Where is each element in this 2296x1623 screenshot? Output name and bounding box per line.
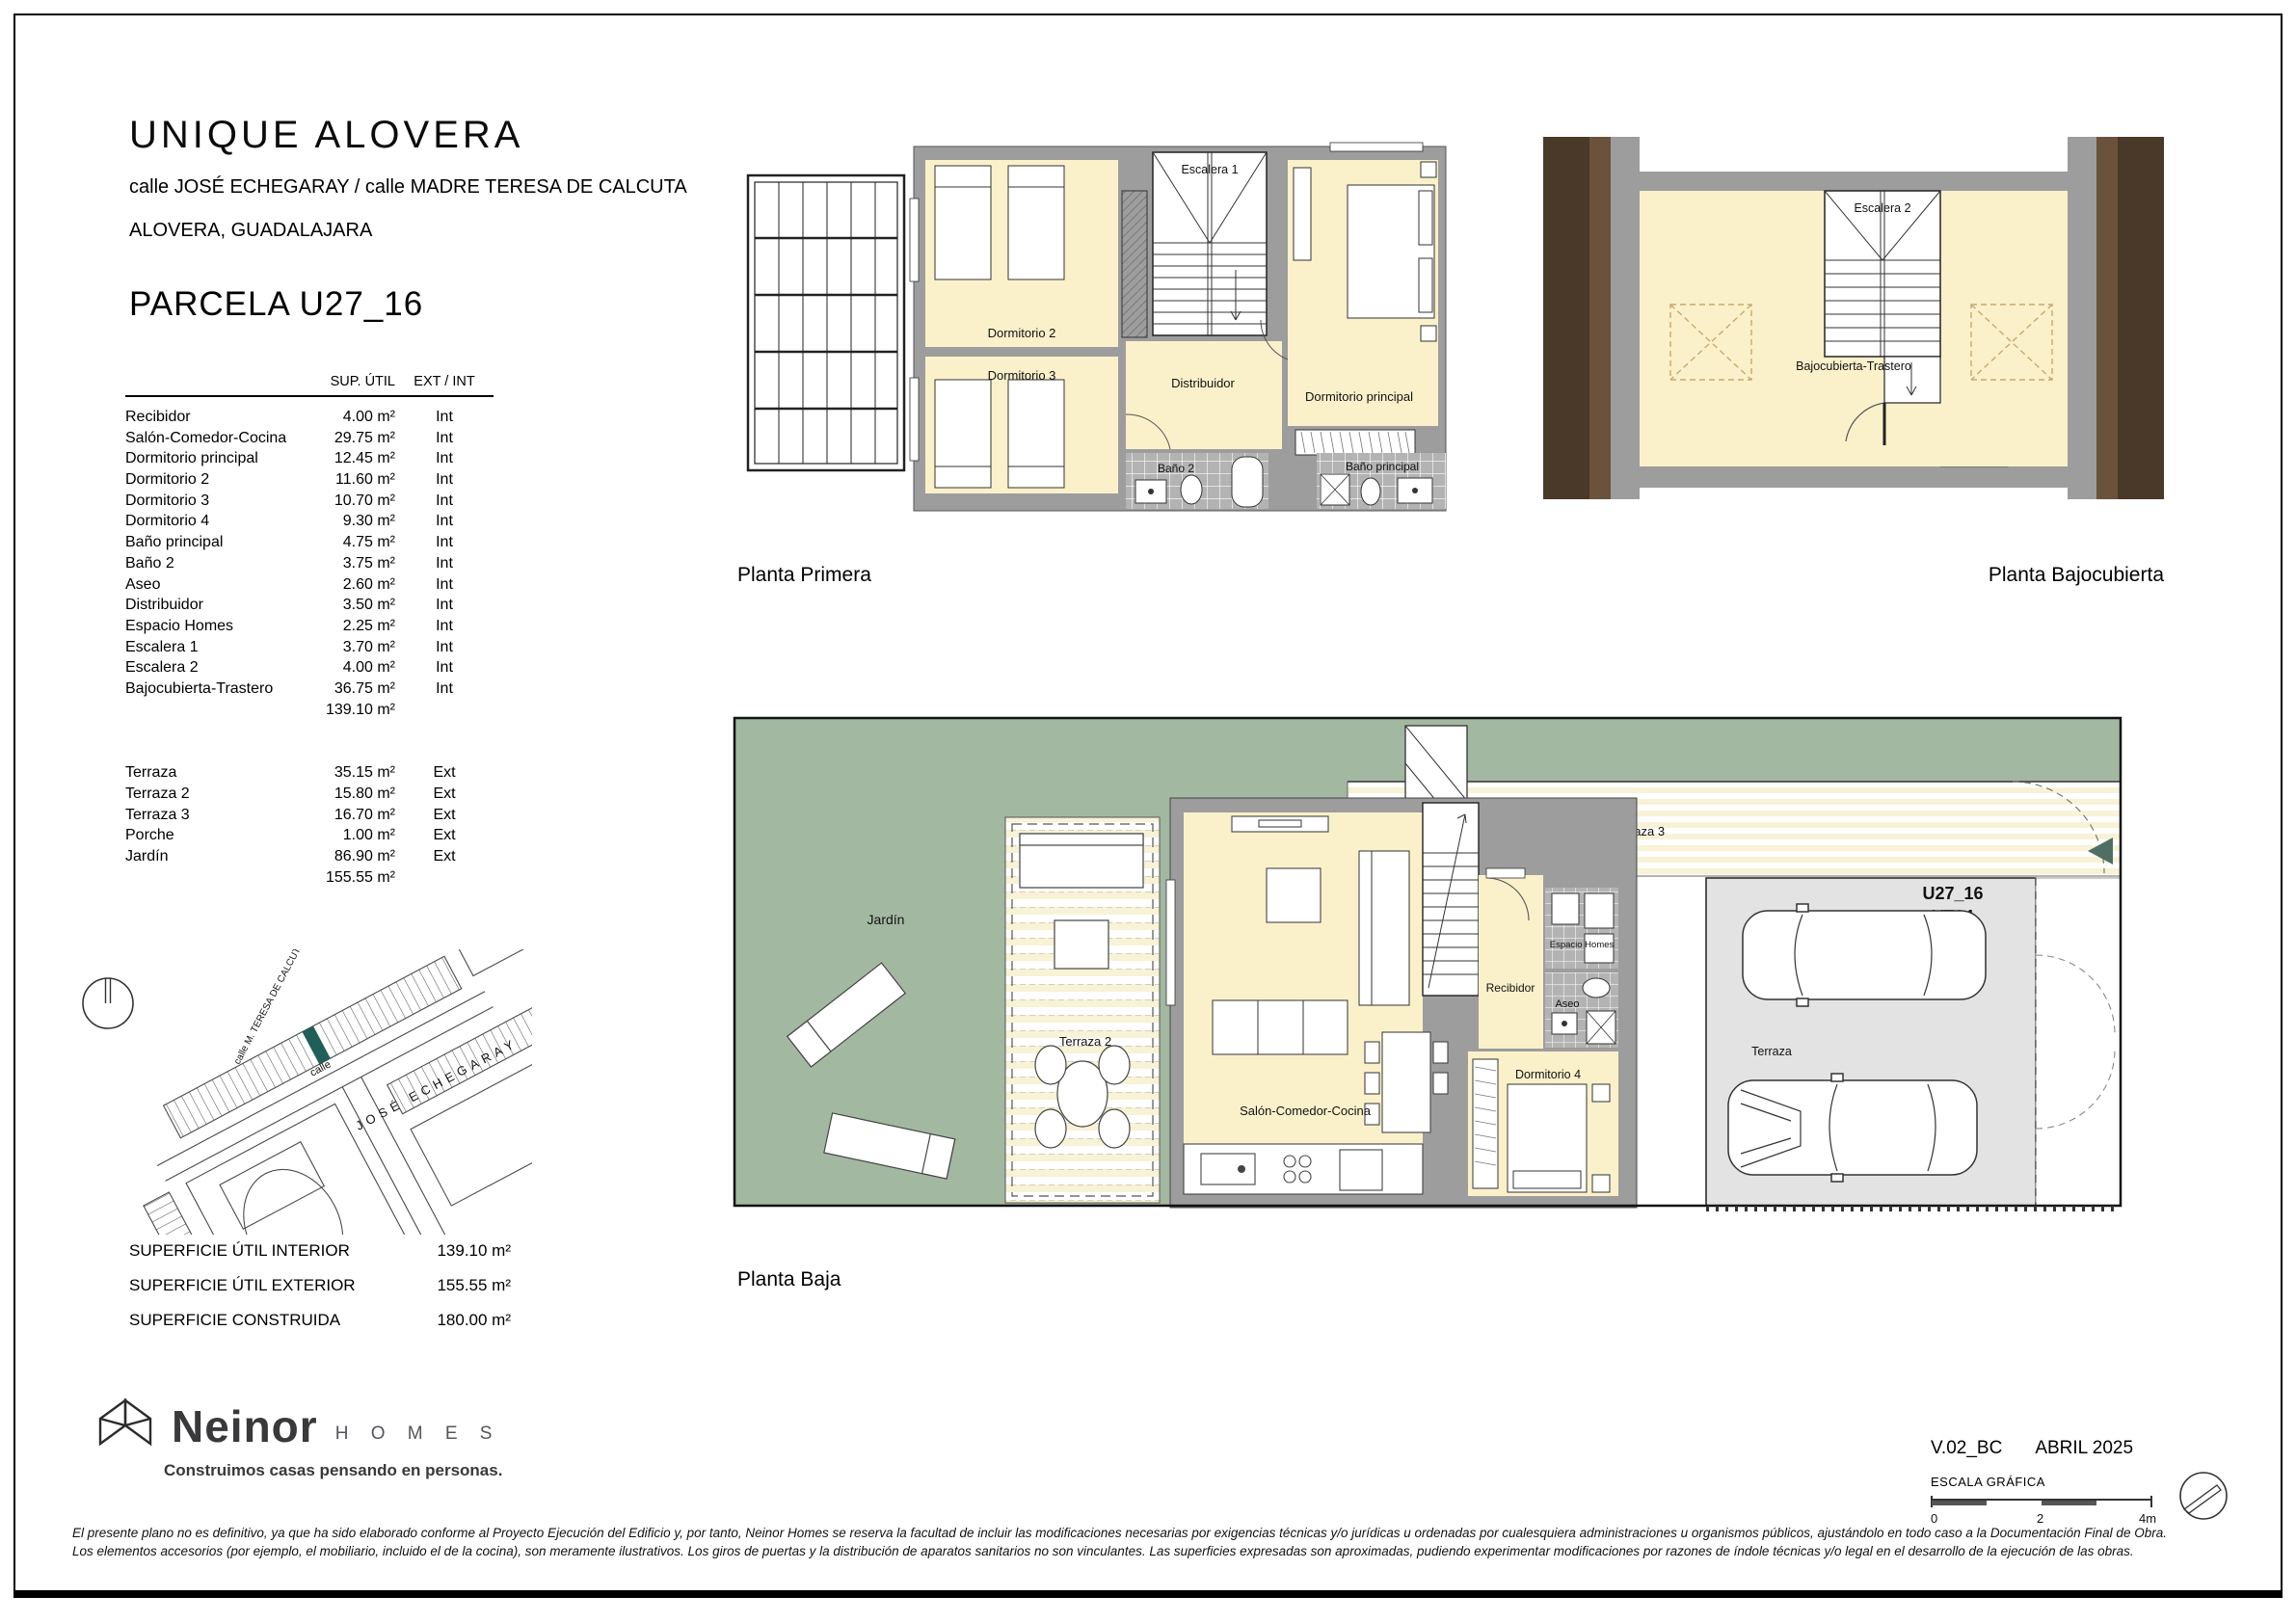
parcel-title: PARCELA U27_16 — [129, 285, 423, 324]
table-row: Escalera 13.70 m²Int — [125, 637, 494, 658]
svg-text:Recibidor: Recibidor — [1486, 981, 1535, 995]
svg-text:Dormitorio principal: Dormitorio principal — [1305, 389, 1413, 404]
table-row: Baño 23.75 m²Int — [125, 553, 494, 574]
room-espacio-homes: Espacio Homes — [1545, 888, 1618, 969]
svg-text:Aseo: Aseo — [1555, 998, 1579, 1010]
room-dormitorio-3: Dormitorio 3 — [925, 357, 1118, 493]
svg-text:0: 0 — [1931, 1511, 1937, 1526]
svg-text:Escalera 2: Escalera 2 — [1854, 201, 1910, 215]
brand-tagline: Construimos casas pensando en personas. — [164, 1461, 502, 1480]
table-row: Salón-Comedor-Cocina29.75 m²Int — [125, 428, 494, 449]
brand-sub: H O M E S — [335, 1423, 501, 1445]
disclaimer-paragraph-2: Los elementos accesorios (por ejemplo, e… — [72, 1543, 2239, 1561]
planta-baja-plan: Jardín Terraza 2 Terraza 3 — [731, 706, 2135, 1216]
table-row: Recibidor4.00 m²Int — [125, 407, 494, 428]
surface-total-row: SUPERFICIE CONSTRUIDA180.00 m² — [129, 1311, 511, 1345]
table-row: Dormitorio 310.70 m²Int — [125, 491, 494, 512]
wardrobe — [1122, 191, 1147, 337]
area-table: SUP. ÚTIL EXT / INT Recibidor4.00 m²IntS… — [125, 374, 494, 888]
planta-bajocubierta-plan: Escalera 2 Bajocubierta-Trastero — [1535, 123, 2172, 513]
room-aseo: Aseo — [1545, 972, 1618, 1048]
version-code: V.02_BC — [1931, 1438, 2002, 1458]
column-sup-util: SUP. ÚTIL — [289, 374, 395, 393]
neinor-logo-icon — [96, 1396, 156, 1448]
table-row: Dormitorio 211.60 m²Int — [125, 469, 494, 491]
disclaimer-paragraph-1: El presente plano no es definitivo, ya q… — [72, 1525, 2239, 1543]
room-salon-comedor-cocina: Salón-Comedor-Cocina — [1166, 812, 1448, 1194]
terraza-2: Terraza 2 — [1005, 817, 1160, 1203]
exterior-total-row: 155.55 m² — [125, 867, 494, 889]
svg-text:Espacio Homes: Espacio Homes — [1550, 940, 1615, 950]
exterior-total: 155.55 m² — [289, 867, 395, 889]
garage-terrace: Terraza U27_16 VT04 — [1706, 878, 2036, 1206]
table-row: Aseo2.60 m²Int — [125, 574, 494, 596]
svg-text:4m: 4m — [2139, 1511, 2156, 1526]
address-line-1: calle JOSÉ ECHEGARAY / calle MADRE TERES… — [129, 176, 687, 199]
svg-text:Distribuidor: Distribuidor — [1171, 376, 1235, 390]
exterior-rows: Terraza35.15 m²ExtTerraza 215.80 m²ExtTe… — [125, 762, 494, 866]
pergola-grid — [748, 175, 904, 470]
svg-text:Dormitorio 2: Dormitorio 2 — [988, 326, 1056, 340]
room-label-jardin: Jardín — [868, 912, 905, 927]
page-title: UNIQUE ALOVERA — [129, 114, 523, 157]
table-row: Bajocubierta-Trastero36.75 m²Int — [125, 678, 494, 700]
interior-stair — [1423, 803, 1479, 996]
north-arrow-icon — [2176, 1469, 2230, 1523]
area-table-header: SUP. ÚTIL EXT / INT — [125, 374, 494, 393]
caption-planta-primera: Planta Primera — [737, 564, 871, 587]
svg-text:Terraza: Terraza — [1751, 1045, 1792, 1058]
sheet-bottom-rule — [13, 1590, 2283, 1597]
surface-total-row: SUPERFICIE ÚTIL EXTERIOR155.55 m² — [129, 1276, 511, 1311]
room-dormitorio-2: Dormitorio 2 — [925, 160, 1118, 347]
svg-text:Dormitorio 4: Dormitorio 4 — [1515, 1068, 1581, 1081]
surface-totals: SUPERFICIE ÚTIL INTERIOR139.10 m²SUPERFI… — [129, 1241, 511, 1345]
svg-text:Baño principal: Baño principal — [1346, 460, 1419, 473]
room-label: Bajocubierta-Trastero — [1796, 359, 1911, 373]
room-recibidor: Recibidor — [1479, 868, 1543, 1049]
caption-planta-bajocubierta: Planta Bajocubierta — [1831, 564, 2164, 587]
svg-text:Baño 2: Baño 2 — [1158, 462, 1194, 475]
legal-disclaimer: El presente plano no es definitivo, ya q… — [72, 1525, 2239, 1560]
table-row: Dormitorio 49.30 m²Int — [125, 511, 494, 532]
interior-rows: Recibidor4.00 m²IntSalón-Comedor-Cocina2… — [125, 407, 494, 700]
version-block: V.02_BCABRIL 2025 — [1931, 1438, 2133, 1459]
room-dormitorio-4: Dormitorio 4 — [1468, 1051, 1618, 1196]
unit-code-line1: U27_16 — [1922, 884, 1983, 903]
column-ext-int: EXT / INT — [395, 374, 494, 393]
table-row: Escalera 24.00 m²Int — [125, 657, 494, 678]
version-date: ABRIL 2025 — [2035, 1438, 2133, 1458]
svg-text:Dormitorio 3: Dormitorio 3 — [988, 368, 1056, 383]
table-row: Baño principal4.75 m²Int — [125, 532, 494, 553]
table-rule — [125, 395, 494, 397]
table-row: Espacio Homes2.25 m²Int — [125, 616, 494, 637]
table-row: Dormitorio principal12.45 m²Int — [125, 448, 494, 469]
driveway — [2036, 878, 2121, 1206]
table-row: Porche1.00 m²Ext — [125, 825, 494, 846]
table-row: Distribuidor3.50 m²Int — [125, 595, 494, 616]
caption-planta-baja: Planta Baja — [737, 1268, 841, 1291]
plan-sheet: UNIQUE ALOVERA calle JOSÉ ECHEGARAY / ca… — [0, 0, 2296, 1623]
car-1 — [1743, 904, 1986, 1006]
address-line-2: ALOVERA, GUADALAJARA — [129, 220, 372, 242]
interior-total: 139.10 m² — [289, 700, 395, 721]
site-location-map: calle JOSÉ ECHEGARAY calle M. TERESA DE … — [69, 949, 532, 1235]
surface-total-row: SUPERFICIE ÚTIL INTERIOR139.10 m² — [129, 1241, 511, 1276]
scale-label: ESCALA GRÁFICA — [1931, 1475, 2045, 1489]
garden-top-band — [1170, 718, 2121, 782]
svg-text:2: 2 — [2037, 1511, 2043, 1526]
table-row: Terraza 316.70 m²Ext — [125, 805, 494, 826]
svg-text:Terraza 2: Terraza 2 — [1059, 1034, 1111, 1049]
brand-name: Neinor — [172, 1405, 318, 1448]
brand-block: Neinor H O M E S Construimos casas pensa… — [96, 1396, 502, 1480]
table-row: Jardín86.90 m²Ext — [125, 846, 494, 867]
car-2 — [1728, 1074, 1977, 1182]
interior-total-row: 139.10 m² — [125, 700, 494, 721]
room-dormitorio-principal: Dormitorio principal — [1288, 160, 1438, 426]
svg-text:Escalera 1: Escalera 1 — [1181, 163, 1238, 176]
room-bano-2: Baño 2 — [1126, 453, 1268, 509]
closet — [1295, 430, 1415, 455]
table-row: Terraza 215.80 m²Ext — [125, 784, 494, 805]
room-bano-principal: Baño principal — [1317, 453, 1446, 509]
north-compass-icon — [83, 978, 133, 1028]
room-escalera-1: Escalera 1 — [1153, 152, 1267, 335]
planta-primera-plan: Dormitorio 2 Dormitorio 3 — [731, 135, 1452, 522]
svg-text:Salón-Comedor-Cocina: Salón-Comedor-Cocina — [1240, 1104, 1372, 1118]
table-row: Terraza35.15 m²Ext — [125, 762, 494, 784]
